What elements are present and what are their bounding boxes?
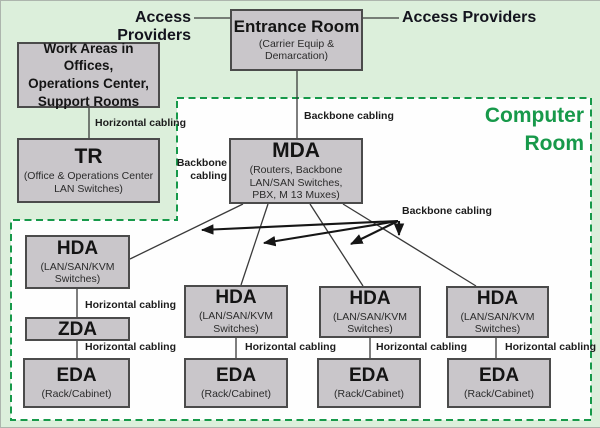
horizontal-cabling-col2-label: Horizontal cabling xyxy=(245,341,336,354)
node-subtitle: (Rack/Cabinet) xyxy=(464,388,534,400)
node-subtitle: (Office & Operations Center LAN Switches… xyxy=(24,170,153,195)
horizontal-cabling-col3-label: Horizontal cabling xyxy=(376,341,467,354)
access-providers-left-label: Access Providers xyxy=(61,9,191,44)
node-eda-1: EDA (Rack/Cabinet) xyxy=(23,358,130,408)
node-subtitle: (Rack/Cabinet) xyxy=(201,388,271,400)
horizontal-cabling-hda-zda-label: Horizontal cabling xyxy=(85,299,176,312)
node-title: HDA xyxy=(215,288,256,307)
horizontal-cabling-work-tr-label: Horizontal cabling xyxy=(95,117,186,130)
node-eda-2: EDA (Rack/Cabinet) xyxy=(184,358,288,408)
node-title: EDA xyxy=(56,366,96,385)
node-work-areas: Work Areas in Offices, Operations Center… xyxy=(17,42,160,108)
node-title: EDA xyxy=(479,366,519,385)
node-eda-3: EDA (Rack/Cabinet) xyxy=(317,358,421,408)
backbone-cabling-tr-mda-label: Backbone cabling xyxy=(161,157,227,182)
computer-room-label: Computer Room xyxy=(461,102,584,158)
horizontal-cabling-zda-eda-label: Horizontal cabling xyxy=(85,341,176,354)
node-subtitle: (Routers, Backbone LAN/SAN Switches, PBX… xyxy=(250,164,343,201)
backbone-cabling-entrance-mda-label: Backbone cabling xyxy=(304,110,394,123)
node-subtitle: (LAN/SAN/KVM Switches) xyxy=(40,261,114,286)
node-subtitle: (LAN/SAN/KVM Switches) xyxy=(333,311,407,336)
node-eda-4: EDA (Rack/Cabinet) xyxy=(447,358,551,408)
node-entrance-room: Entrance Room (Carrier Equip & Demarcati… xyxy=(230,9,363,71)
access-providers-right-label: Access Providers xyxy=(402,9,536,27)
node-subtitle: (Rack/Cabinet) xyxy=(41,388,111,400)
node-subtitle: (LAN/SAN/KVM Switches) xyxy=(460,311,534,336)
node-subtitle: (Rack/Cabinet) xyxy=(334,388,404,400)
node-hda-4: HDA (LAN/SAN/KVM Switches) xyxy=(446,286,549,338)
node-title: Work Areas in Offices, Operations Center… xyxy=(19,40,158,110)
node-hda-2: HDA (LAN/SAN/KVM Switches) xyxy=(184,285,288,338)
node-title: HDA xyxy=(477,289,518,308)
node-title: EDA xyxy=(349,366,389,385)
node-title: Entrance Room xyxy=(234,18,360,35)
node-hda-left: HDA (LAN/SAN/KVM Switches) xyxy=(25,235,130,289)
node-subtitle: (Carrier Equip & Demarcation) xyxy=(259,38,334,63)
node-tr: TR (Office & Operations Center LAN Switc… xyxy=(17,138,160,203)
horizontal-cabling-col4-label: Horizontal cabling xyxy=(505,341,596,354)
node-title: TR xyxy=(75,146,103,167)
node-subtitle: (LAN/SAN/KVM Switches) xyxy=(199,310,273,335)
diagram-canvas: Access Providers Access Providers Comput… xyxy=(0,0,600,428)
node-hda-3: HDA (LAN/SAN/KVM Switches) xyxy=(319,286,421,338)
node-title: ZDA xyxy=(58,320,97,339)
node-zda: ZDA xyxy=(25,317,130,341)
node-title: HDA xyxy=(57,239,98,258)
backbone-cabling-fanout-label: Backbone cabling xyxy=(402,205,492,218)
node-title: EDA xyxy=(216,366,256,385)
node-title: HDA xyxy=(349,289,390,308)
node-title: MDA xyxy=(272,140,320,161)
node-mda: MDA (Routers, Backbone LAN/SAN Switches,… xyxy=(229,138,363,204)
